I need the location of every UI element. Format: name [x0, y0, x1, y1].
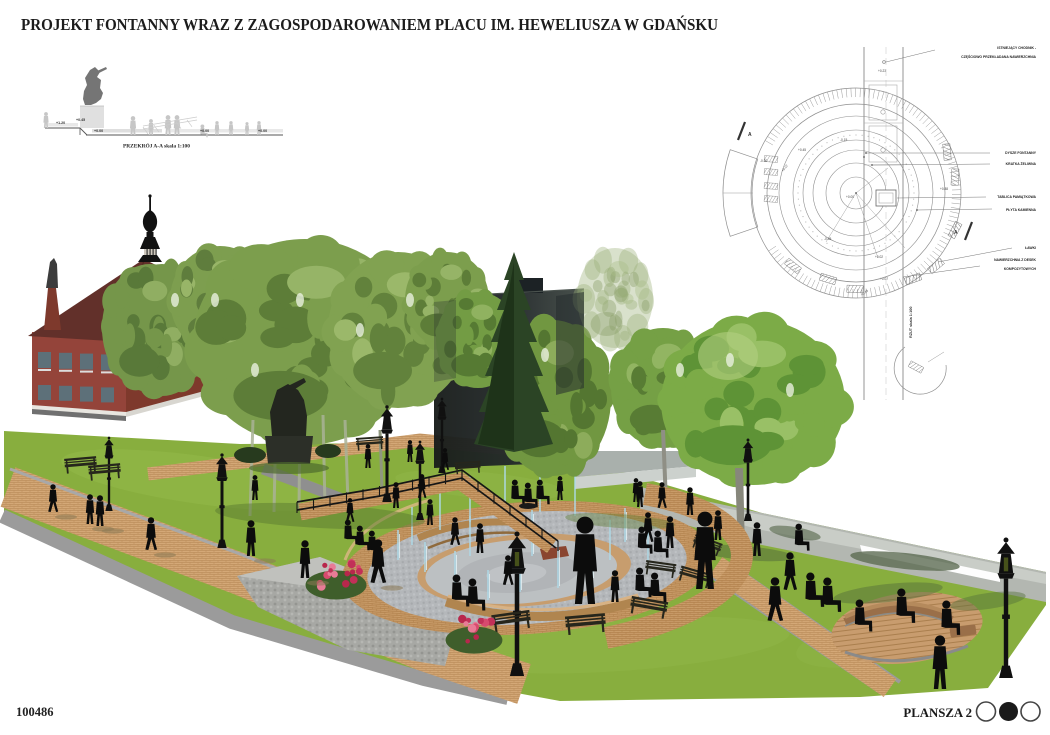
svg-text:PŁYTA KAMIENNA: PŁYTA KAMIENNA [1006, 208, 1036, 212]
svg-text:ŁAWKI: ŁAWKI [1025, 246, 1036, 250]
svg-text:KRATKA ŻELIWNA: KRATKA ŻELIWNA [1006, 162, 1037, 166]
svg-text:-0.15: -0.15 [840, 138, 847, 142]
svg-text:DYSZE FONTANNY: DYSZE FONTANNY [1005, 151, 1037, 155]
svg-text:+0.45: +0.45 [76, 118, 85, 122]
svg-text:PLANSZA 2: PLANSZA 2 [903, 706, 972, 720]
svg-text:A: A [954, 230, 958, 236]
svg-text:+0.00: +0.00 [94, 129, 103, 133]
svg-text:CZĘŚCIOWO PRZEKŁADANA NAWIERZC: CZĘŚCIOWO PRZEKŁADANA NAWIERZCHNIA [961, 54, 1036, 59]
svg-text:+1.20: +1.20 [56, 121, 65, 125]
svg-text:+0.02: +0.02 [875, 255, 883, 259]
svg-text:TABLICA PAMIĄTKOWA: TABLICA PAMIĄTKOWA [997, 195, 1036, 199]
svg-text:+0.45: +0.45 [798, 148, 806, 152]
svg-text:+0.00: +0.00 [846, 195, 854, 199]
svg-text:-0.30: -0.30 [760, 159, 767, 163]
svg-text:A: A [748, 132, 752, 138]
svg-text:PRZEKRÓJ A-A skala 1:100: PRZEKRÓJ A-A skala 1:100 [123, 142, 190, 150]
svg-text:+0.00: +0.00 [200, 129, 209, 133]
svg-text:KOMPOZYTOWYCH: KOMPOZYTOWYCH [1004, 267, 1037, 271]
svg-text:+0.88: +0.88 [940, 187, 948, 191]
svg-text:100486: 100486 [16, 705, 54, 719]
svg-text:NAWIERZCHNIA Z DESEK: NAWIERZCHNIA Z DESEK [994, 258, 1036, 262]
svg-text:ISTNIEJĄCY CHODNIK -: ISTNIEJĄCY CHODNIK - [997, 46, 1036, 50]
svg-text:RZUT skala 1:100: RZUT skala 1:100 [909, 307, 913, 338]
svg-text:PROJEKT FONTANNY WRAZ Z ZAGOSP: PROJEKT FONTANNY WRAZ Z ZAGOSPODAROWANIE… [21, 15, 718, 34]
svg-text:+0.23: +0.23 [878, 69, 886, 73]
svg-text:+0.00: +0.00 [258, 129, 267, 133]
svg-text:-0.45: -0.45 [824, 237, 831, 241]
